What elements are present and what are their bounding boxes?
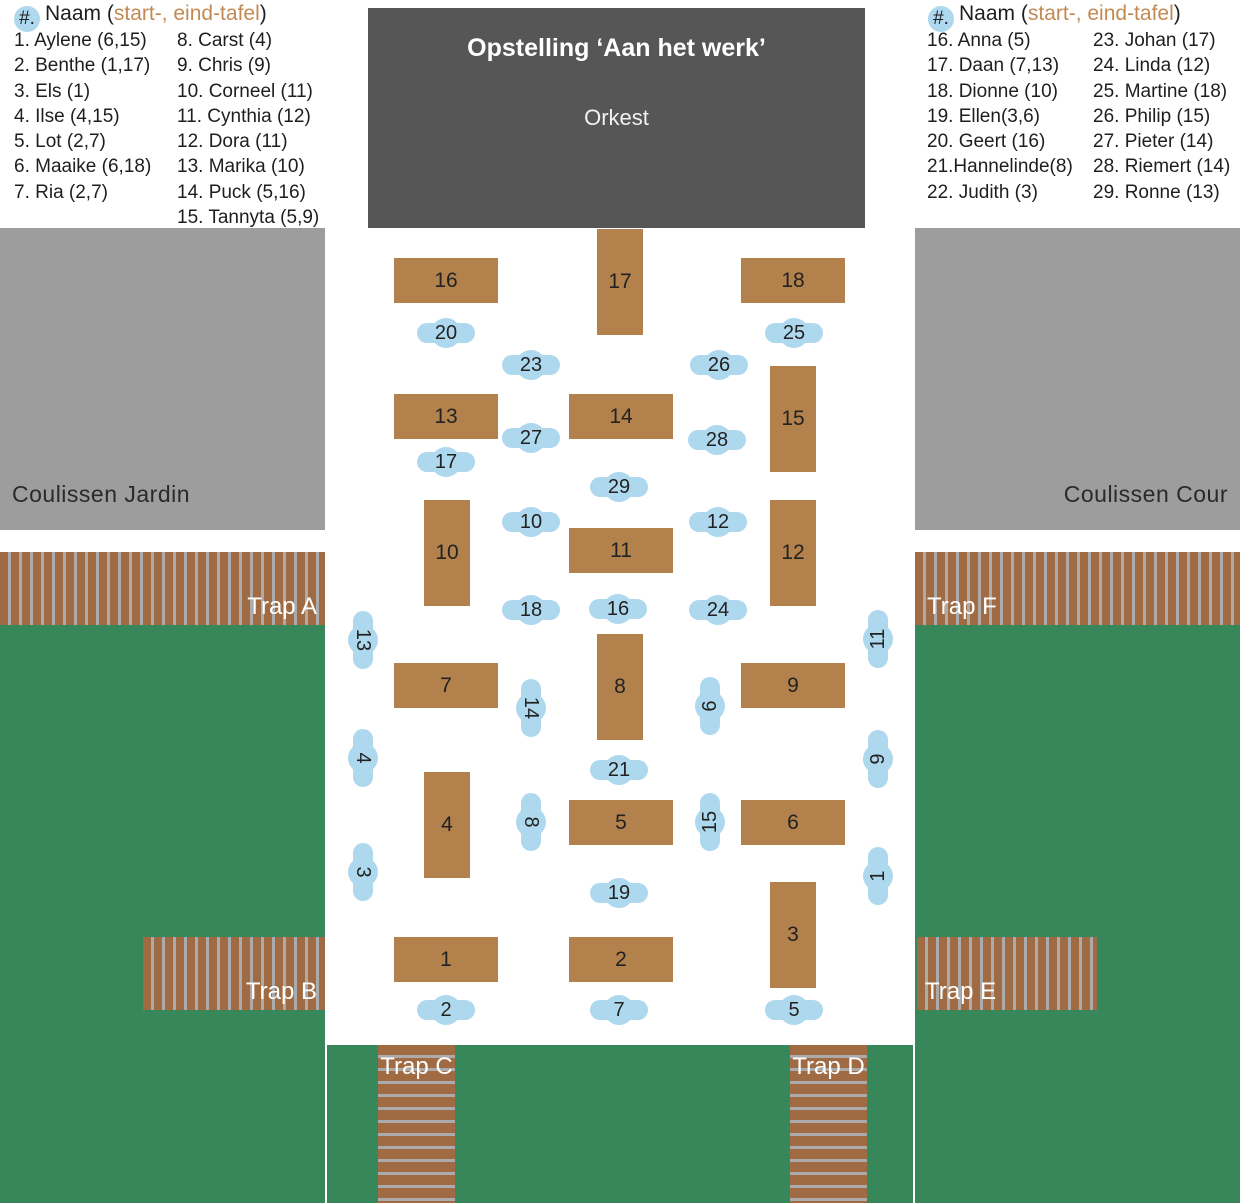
- person-marker-7: 7: [590, 995, 648, 1025]
- legend-item: 2. Benthe (1,17): [14, 53, 151, 78]
- person-marker-1: 1: [863, 847, 893, 905]
- table-number: 3: [787, 923, 799, 947]
- stage-table-10: 10: [424, 500, 470, 606]
- person-number: 19: [590, 878, 648, 908]
- coulissen-jardin-label: Coulissen Jardin: [12, 481, 190, 508]
- table-number: 5: [615, 811, 627, 835]
- legend-item: 21.Hannelinde(8): [927, 154, 1073, 179]
- table-number: 1: [440, 948, 452, 972]
- legend-left-column-1: 1. Aylene (6,15)2. Benthe (1,17)3. Els (…: [14, 28, 151, 205]
- table-number: 7: [440, 674, 452, 698]
- legend-item: 1. Aylene (6,15): [14, 28, 151, 53]
- legend-left-column-2: 8. Carst (4)9. Chris (9)10. Corneel (11)…: [177, 28, 319, 230]
- table-number: 2: [615, 948, 627, 972]
- stage-table-4: 4: [424, 772, 470, 878]
- table-number: 11: [610, 539, 632, 563]
- legend-item: 12. Dora (11): [177, 129, 319, 154]
- person-number: 7: [590, 995, 648, 1025]
- stage-table-9: 9: [741, 663, 845, 708]
- person-number: 13: [348, 611, 378, 669]
- person-number: 11: [863, 610, 893, 668]
- legend-item: 4. Ilse (4,15): [14, 104, 151, 129]
- person-marker-14: 14: [516, 679, 546, 737]
- trap-f-stairs: Trap F: [915, 552, 1240, 625]
- trap-a-label: Trap A: [247, 593, 317, 621]
- stage-table-6: 6: [741, 800, 845, 845]
- coulissen-cour-label: Coulissen Cour: [1064, 481, 1228, 508]
- table-number: 17: [608, 270, 631, 294]
- person-number: 28: [688, 425, 746, 455]
- person-marker-4: 4: [348, 729, 378, 787]
- person-number: 27: [502, 423, 560, 453]
- trap-d-label: Trap D: [792, 1053, 864, 1081]
- legend-item: 23. Johan (17): [1093, 28, 1230, 53]
- person-marker-13: 13: [348, 611, 378, 669]
- table-number: 14: [609, 405, 632, 429]
- legend-item: 29. Ronne (13): [1093, 180, 1230, 205]
- legend-item: 18. Dionne (10): [927, 79, 1073, 104]
- person-marker-25: 25: [765, 318, 823, 348]
- coulissen-jardin-area: Coulissen Jardin: [0, 228, 325, 530]
- person-marker-10: 10: [502, 507, 560, 537]
- person-marker-28: 28: [688, 425, 746, 455]
- stage-table-3: 3: [770, 882, 816, 988]
- person-number: 12: [689, 507, 747, 537]
- legend-right-column-2: 23. Johan (17)24. Linda (12)25. Martine …: [1093, 28, 1230, 205]
- orchestra-box: Opstelling ‘Aan het werk’ Orkest: [368, 8, 865, 228]
- legend-item: 28. Riemert (14): [1093, 154, 1230, 179]
- table-number: 13: [434, 405, 457, 429]
- person-marker-5: 5: [765, 995, 823, 1025]
- stage-table-13: 13: [394, 394, 498, 439]
- person-marker-24: 24: [689, 595, 747, 625]
- legend-item: 10. Corneel (11): [177, 79, 319, 104]
- legend-item: 15. Tannyta (5,9): [177, 205, 319, 230]
- legend-item: 7. Ria (2,7): [14, 180, 151, 205]
- trap-c-stairs: Trap C: [378, 1045, 455, 1203]
- person-number: 16: [589, 594, 647, 624]
- legend-item: 24. Linda (12): [1093, 53, 1230, 78]
- person-marker-17: 17: [417, 447, 475, 477]
- trap-d-stairs: Trap D: [790, 1045, 867, 1203]
- trap-b-label: Trap B: [246, 978, 317, 1006]
- person-number: 9: [863, 730, 893, 788]
- person-marker-21: 21: [590, 755, 648, 785]
- legend-item: 17. Daan (7,13): [927, 53, 1073, 78]
- legend-item: 9. Chris (9): [177, 53, 319, 78]
- legend-item: 16. Anna (5): [927, 28, 1073, 53]
- legend-item: 22. Judith (3): [927, 180, 1073, 205]
- stage-plan-diagram: Coulissen Jardin Coulissen Cour Opstelli…: [0, 0, 1251, 1203]
- person-marker-27: 27: [502, 423, 560, 453]
- trap-f-label: Trap F: [927, 593, 997, 621]
- person-number: 29: [590, 472, 648, 502]
- legend-item: 25. Martine (18): [1093, 79, 1230, 104]
- person-marker-26: 26: [690, 350, 748, 380]
- table-number: 12: [781, 541, 804, 565]
- person-marker-15: 15: [695, 793, 725, 851]
- person-number: 18: [502, 595, 560, 625]
- stage-table-1: 1: [394, 937, 498, 982]
- table-number: 9: [787, 674, 799, 698]
- table-number: 8: [614, 675, 626, 699]
- page-title: Opstelling ‘Aan het werk’: [368, 34, 865, 63]
- legend-item: 3. Els (1): [14, 79, 151, 104]
- person-number: 23: [502, 350, 560, 380]
- stage-table-2: 2: [569, 937, 673, 982]
- legend-header-post: ): [1174, 2, 1181, 25]
- legend-item: 5. Lot (2,7): [14, 129, 151, 154]
- stage-table-12: 12: [770, 500, 816, 606]
- person-number: 17: [417, 447, 475, 477]
- legend-item: 14. Puck (5,16): [177, 180, 319, 205]
- person-number: 10: [502, 507, 560, 537]
- legend-right-column-1: 16. Anna (5)17. Daan (7,13)18. Dionne (1…: [927, 28, 1073, 205]
- trap-a-stairs: Trap A: [0, 552, 325, 625]
- person-number: 4: [348, 729, 378, 787]
- person-marker-3: 3: [348, 843, 378, 901]
- person-number: 14: [516, 679, 546, 737]
- person-marker-12: 12: [689, 507, 747, 537]
- floor-area-right: [915, 625, 1240, 1203]
- stage-table-5: 5: [569, 800, 673, 845]
- trap-e-stairs: Trap E: [917, 937, 1097, 1010]
- legend-item: 6. Maaike (6,18): [14, 154, 151, 179]
- person-number: 8: [516, 793, 546, 851]
- person-marker-2: 2: [417, 995, 475, 1025]
- legend-item: 27. Pieter (14): [1093, 129, 1230, 154]
- trap-b-stairs: Trap B: [143, 937, 325, 1010]
- trap-e-label: Trap E: [925, 978, 996, 1006]
- stage-table-8: 8: [597, 634, 643, 740]
- person-number: 25: [765, 318, 823, 348]
- legend-item: 11. Cynthia (12): [177, 104, 319, 129]
- legend-item: 20. Geert (16): [927, 129, 1073, 154]
- person-number: 2: [417, 995, 475, 1025]
- legend-header-pre: Naam (: [45, 2, 114, 25]
- legend-header-highlight: start-, eind-tafel: [1028, 2, 1174, 25]
- floor-area-left: [0, 625, 325, 1203]
- person-marker-23: 23: [502, 350, 560, 380]
- legend-item: 26. Philip (15): [1093, 104, 1230, 129]
- person-number: 20: [417, 318, 475, 348]
- person-marker-9: 9: [863, 730, 893, 788]
- table-number: 6: [787, 811, 799, 835]
- stage-table-11: 11: [569, 528, 673, 573]
- person-number: 5: [765, 995, 823, 1025]
- legend-item: 13. Marika (10): [177, 154, 319, 179]
- person-marker-19: 19: [590, 878, 648, 908]
- person-marker-18: 18: [502, 595, 560, 625]
- table-number: 10: [435, 541, 458, 565]
- table-number: 18: [781, 269, 804, 293]
- person-number: 6: [695, 677, 725, 735]
- person-marker-6: 6: [695, 677, 725, 735]
- person-marker-8: 8: [516, 793, 546, 851]
- table-number: 4: [441, 813, 453, 837]
- person-number: 1: [863, 847, 893, 905]
- person-marker-11: 11: [863, 610, 893, 668]
- stage-table-7: 7: [394, 663, 498, 708]
- stage-table-15: 15: [770, 366, 816, 472]
- stage-table-14: 14: [569, 394, 673, 439]
- stage-table-16: 16: [394, 258, 498, 303]
- table-number: 15: [781, 407, 804, 431]
- stage-table-18: 18: [741, 258, 845, 303]
- person-marker-16: 16: [589, 594, 647, 624]
- trap-c-label: Trap C: [380, 1053, 452, 1081]
- table-number: 16: [434, 269, 457, 293]
- legend-item: 19. Ellen(3,6): [927, 104, 1073, 129]
- person-number: 15: [695, 793, 725, 851]
- person-number: 24: [689, 595, 747, 625]
- legend-header-highlight: start-, eind-tafel: [114, 2, 260, 25]
- person-number: 26: [690, 350, 748, 380]
- legend-header-pre: Naam (: [959, 2, 1028, 25]
- legend-header-post: ): [260, 2, 267, 25]
- person-number: 3: [348, 843, 378, 901]
- person-number: 21: [590, 755, 648, 785]
- stage-table-17: 17: [597, 229, 643, 335]
- legend-item: 8. Carst (4): [177, 28, 319, 53]
- person-marker-20: 20: [417, 318, 475, 348]
- orchestra-label: Orkest: [368, 105, 865, 131]
- coulissen-cour-area: Coulissen Cour: [915, 228, 1240, 530]
- person-marker-29: 29: [590, 472, 648, 502]
